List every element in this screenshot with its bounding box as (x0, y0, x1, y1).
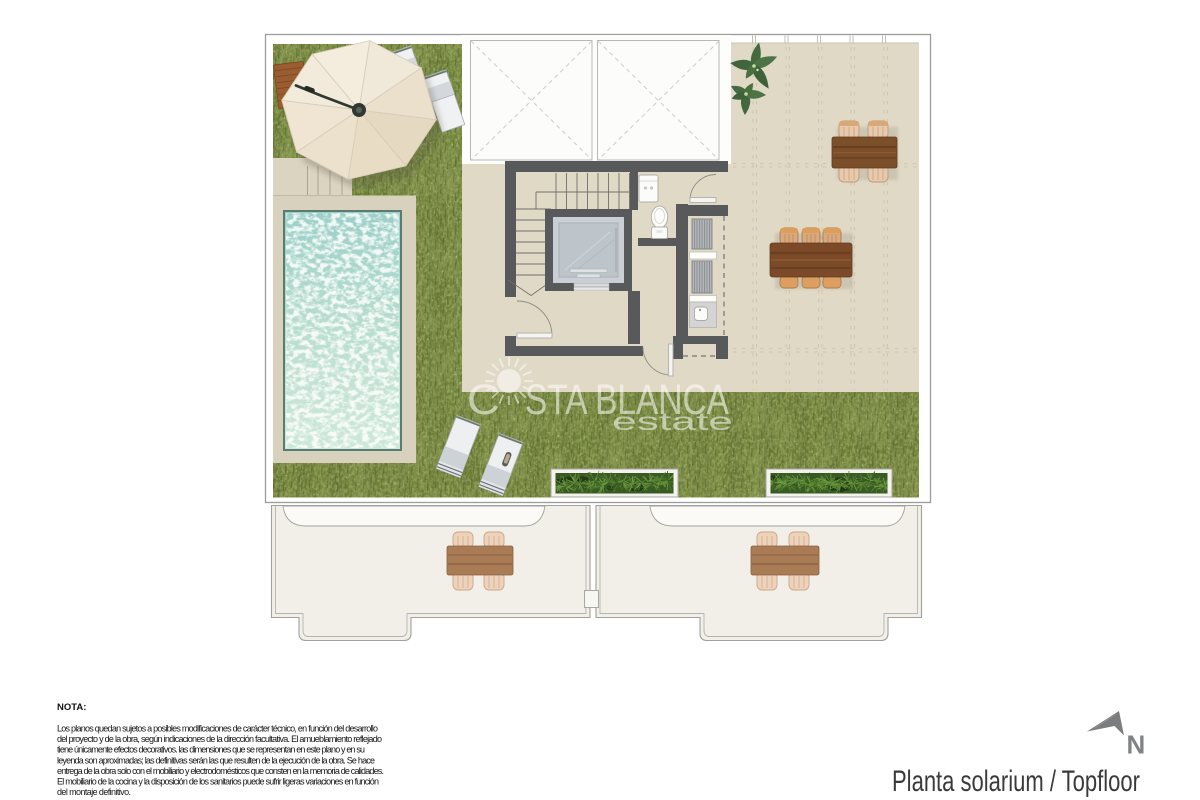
svg-text:del montaje definitivo.: del montaje definitivo. (57, 787, 131, 797)
svg-text:tiene únicamente efectos decor: tiene únicamente efectos decorativos. la… (57, 745, 365, 755)
svg-text:estate: estate (612, 408, 733, 436)
svg-text:Los planos quedan sujetos a po: Los planos quedan sujetos a posibles mod… (57, 724, 378, 734)
svg-text:El mobiliario de la cocina y l: El mobiliario de la cocina y la disposic… (57, 777, 379, 787)
svg-text:del proyecto y de la obra, seg: del proyecto y de la obra, según indicac… (57, 734, 382, 744)
svg-text:NOTA:: NOTA: (57, 702, 86, 713)
svg-text:Planta solarium / Topfloor: Planta solarium / Topfloor (892, 765, 1140, 798)
svg-text:C: C (467, 376, 500, 424)
svg-text:entrega de la obra solo con el: entrega de la obra solo con el mobiliari… (57, 766, 384, 776)
svg-text:N: N (1127, 730, 1146, 760)
svg-text:leyenda son aproximadas; las d: leyenda son aproximadas; las definitivas… (57, 755, 375, 765)
